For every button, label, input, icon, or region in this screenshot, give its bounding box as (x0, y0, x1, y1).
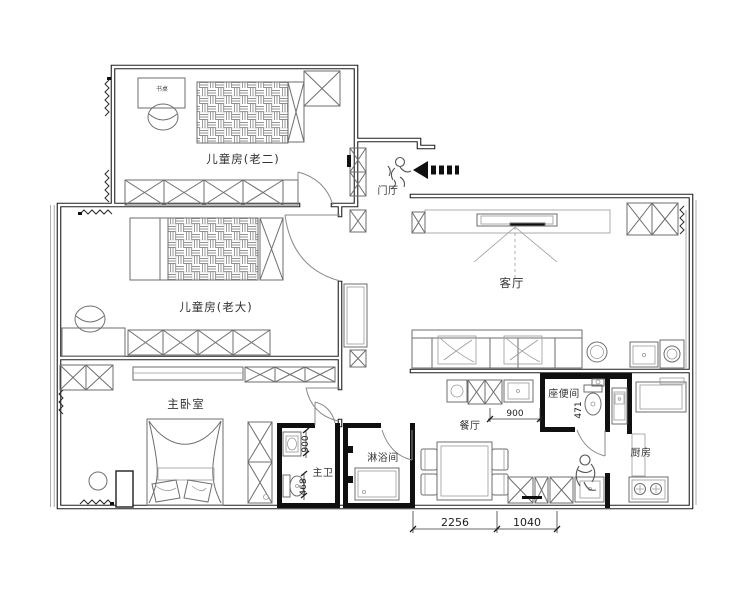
door-master-suite (306, 388, 340, 421)
toilet2 (584, 385, 602, 415)
door-kids2 (298, 172, 333, 205)
person-figure-entry (388, 158, 411, 190)
bath-sink (283, 432, 301, 456)
master-bathroom: 900 468 主卫 (283, 428, 334, 500)
dining-table (421, 442, 508, 500)
desk (138, 78, 185, 108)
kids-room-1: 儿童房(老大) (62, 218, 283, 356)
closet-row-kids2 (125, 180, 298, 205)
shower-valve (347, 446, 353, 453)
room-label-kids1: 儿童房(老大) (179, 300, 252, 314)
bed-kids1 (130, 218, 283, 280)
room-label-entry: 门厅 (378, 184, 399, 197)
room-label-toilet: 座便间 (548, 387, 580, 400)
closet-left-master (60, 365, 113, 390)
fridge (636, 378, 686, 412)
room-label-kids2: 儿童房(老二) (206, 152, 279, 166)
shower-room: 淋浴间 (347, 446, 399, 500)
desk-kids1 (62, 328, 125, 356)
master-bedroom: 主卧室 (60, 365, 335, 505)
room-label-bath: 主卫 (313, 467, 334, 479)
entry-cabinets (347, 148, 366, 367)
wall-pillar (116, 471, 133, 507)
cabinet-top-right (304, 71, 340, 106)
room-label-dining: 餐厅 (460, 419, 481, 432)
bed-master (147, 419, 223, 505)
room-label-kitchen: 厨房 (631, 446, 652, 459)
dim-bottom-right: 1040 (513, 516, 541, 529)
hall-cabinet (344, 284, 367, 347)
room-label-shower: 淋浴间 (367, 451, 399, 464)
room-label-master: 主卧室 (167, 397, 205, 411)
dim-toilet-room: 471 (574, 401, 584, 418)
dim-bath-vanity: 900 (301, 435, 311, 452)
closet-row-kids1 (128, 330, 270, 355)
tv-wall (412, 210, 610, 233)
cabinet-living-topright (627, 203, 678, 235)
desk-label: 书桌 (156, 85, 168, 93)
stove (629, 477, 668, 502)
dresser-shelf (133, 367, 243, 380)
shower-valve2 (347, 476, 353, 483)
appliance-row (508, 455, 604, 503)
dim-dining-cabinet: 900 (506, 409, 523, 419)
kids-room-2: 书桌 儿童房(老二) (125, 71, 340, 205)
floor-plan-canvas: 书桌 儿童房(老二) (0, 0, 740, 600)
living-room: 客厅 (412, 203, 684, 368)
side-stool (587, 342, 607, 362)
bed-kids2 (197, 82, 288, 143)
vanity-nook (612, 388, 627, 424)
room-label-living: 客厅 (500, 276, 525, 290)
person-figure-kitchen (576, 455, 596, 490)
washing-machine (660, 340, 684, 368)
floor-lamp (89, 472, 107, 490)
undersofa-cabinets (447, 380, 533, 404)
door-master-bath (315, 402, 335, 425)
cabinet-tall-thin (288, 82, 304, 142)
floor-plan-page: 书桌 儿童房(老二) (0, 0, 740, 600)
dining-room: 900 餐厅 (421, 380, 543, 500)
shower-tray (355, 468, 399, 500)
sofa (412, 330, 582, 368)
door-toilet-room (577, 430, 605, 456)
toilet-room: 471 座便间 (548, 379, 627, 424)
bottom-dimensions: 2256 1040 (410, 511, 560, 533)
wardrobe-master (248, 422, 272, 503)
side-cabinet-basin (630, 342, 658, 367)
closet-top-master (245, 367, 335, 382)
entry-hall: 门厅 (344, 148, 459, 367)
dim-bath-toilet: 468 (299, 478, 309, 495)
entry-arrow-icon (413, 161, 459, 179)
tv-sightlines (474, 227, 557, 262)
window-left (51, 205, 55, 507)
door-kids1 (285, 215, 340, 281)
kitchen: 厨房 (629, 378, 686, 502)
dim-bottom-left: 2256 (441, 516, 469, 529)
